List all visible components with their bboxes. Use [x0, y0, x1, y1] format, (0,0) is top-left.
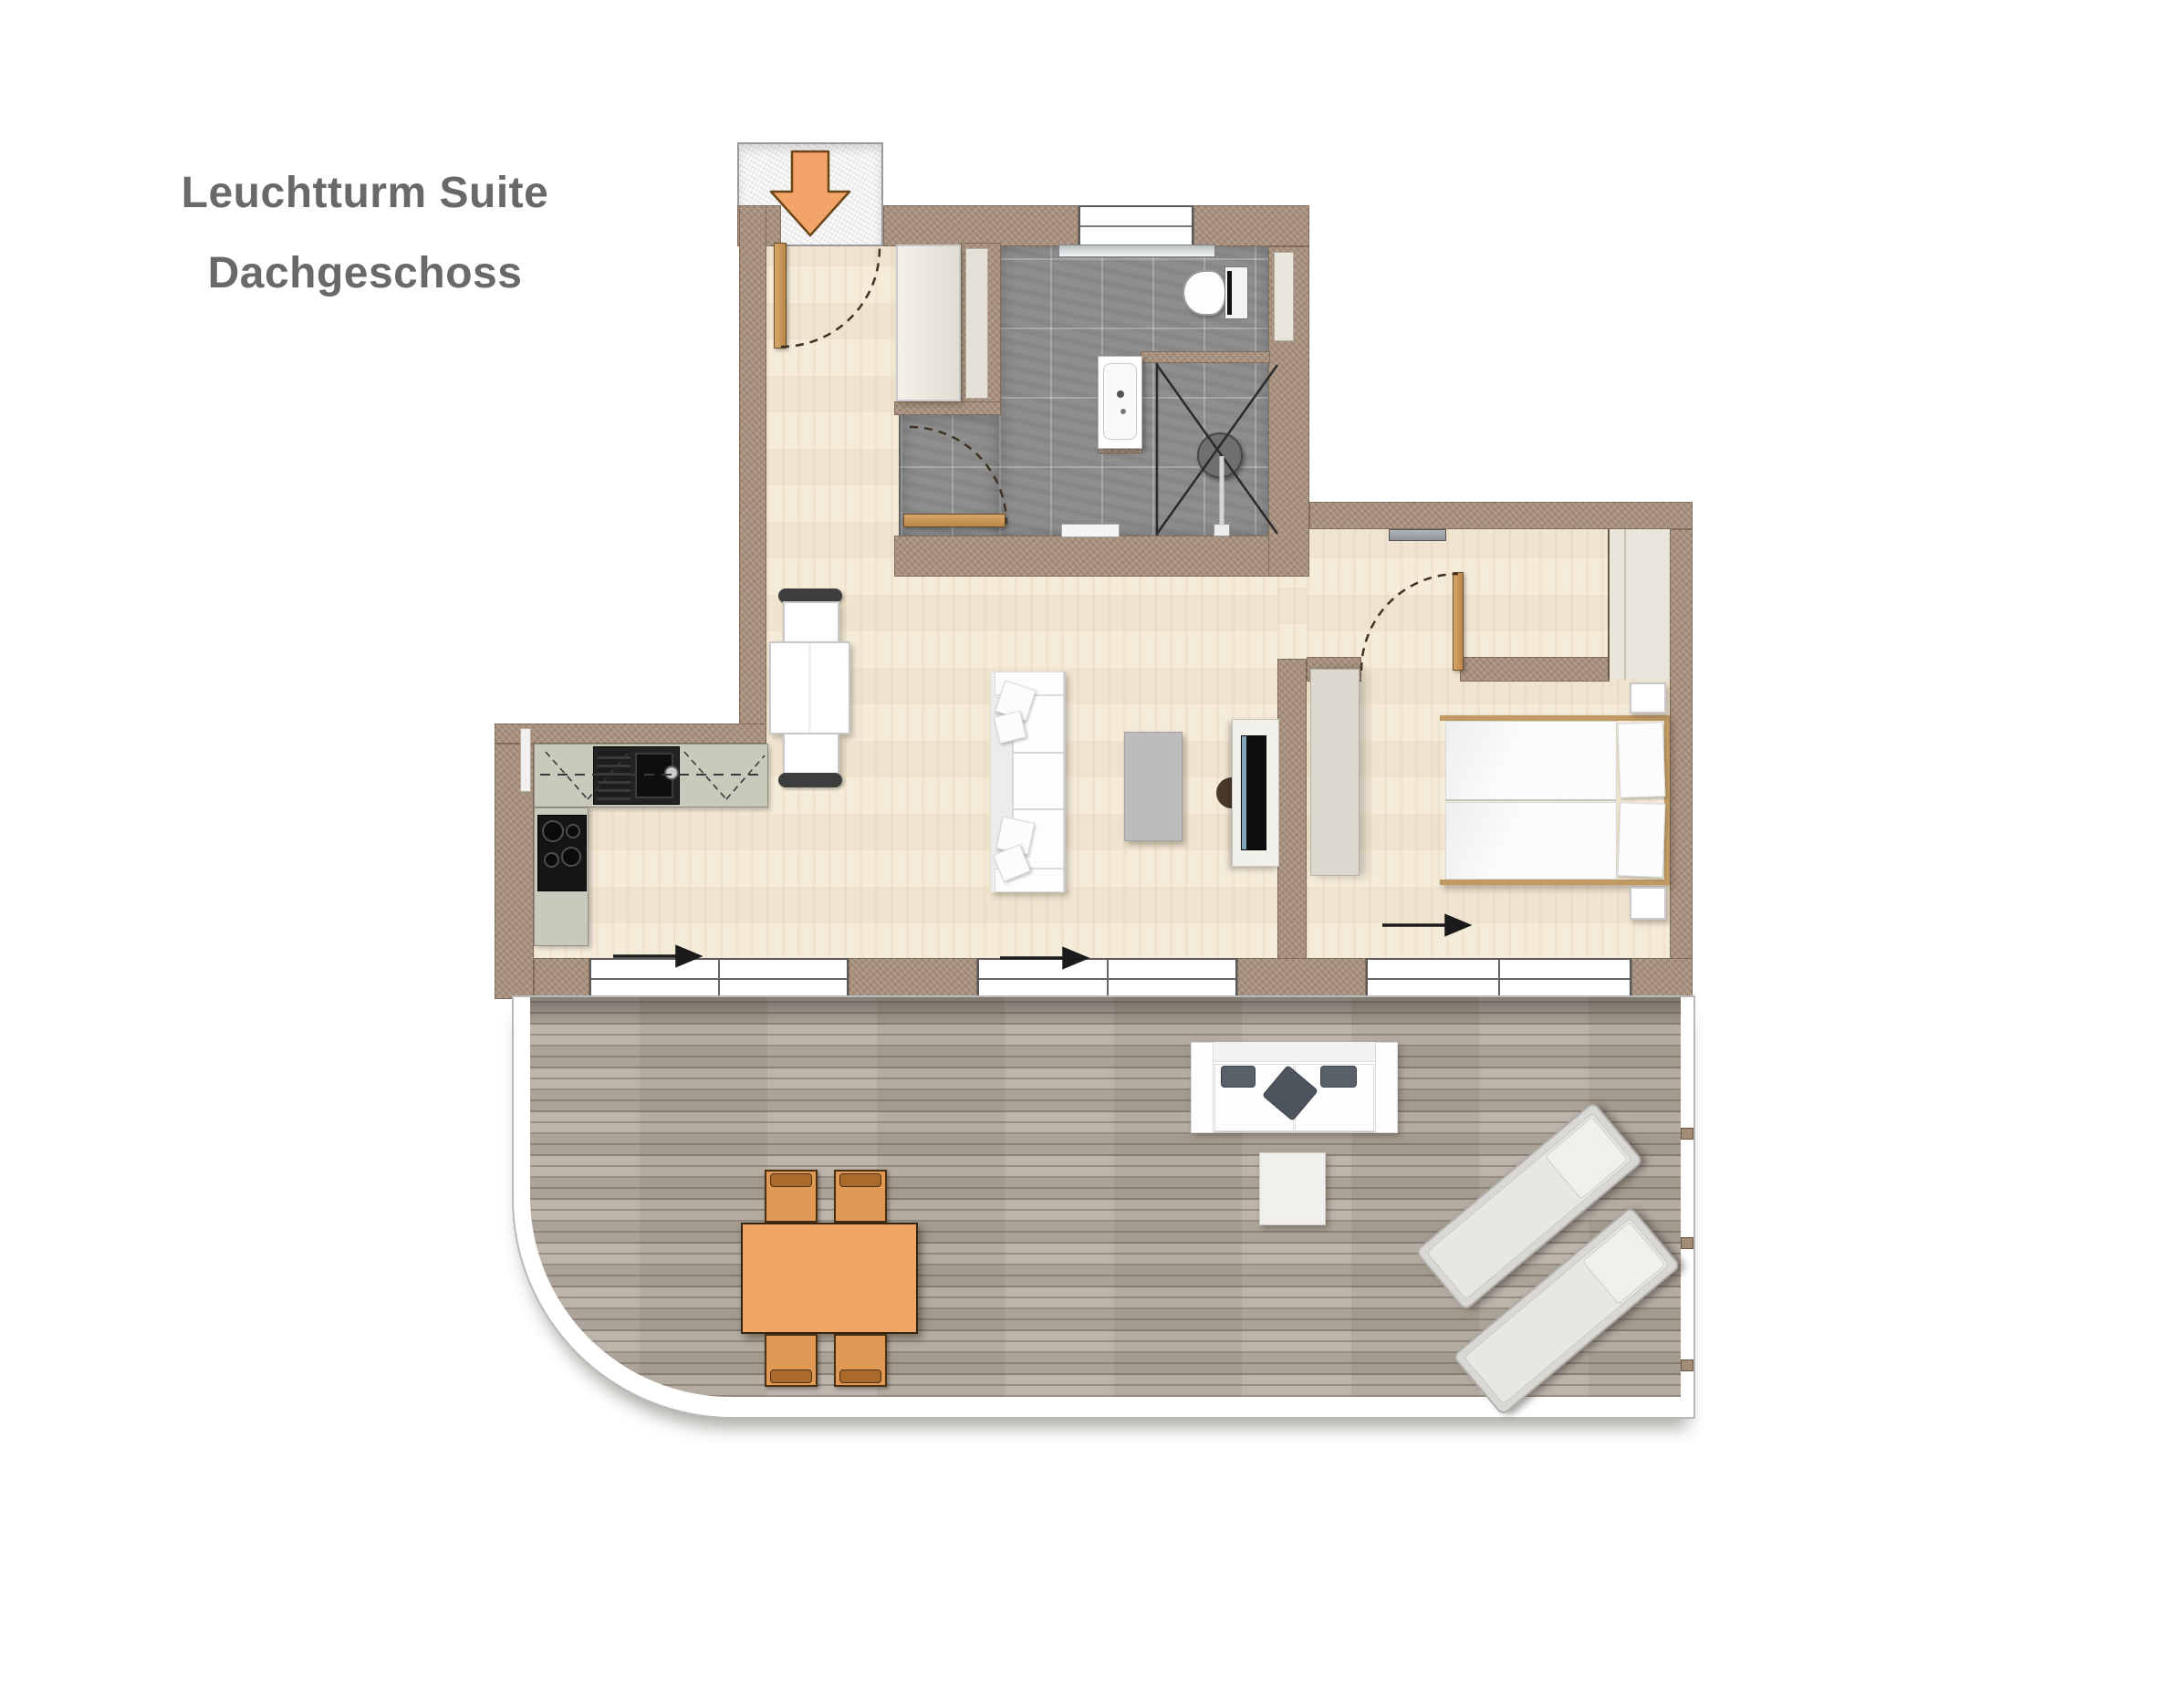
burner-1: [542, 820, 564, 842]
bathroom-door-leaf: [903, 514, 1006, 527]
bed-duvet-1: [1445, 721, 1617, 801]
wall-bedroom-door-right: [1460, 657, 1610, 682]
vanity-faucet: [1117, 391, 1124, 398]
bedroom-closet: [1608, 529, 1670, 680]
kitchen-wall-niche: [520, 728, 531, 792]
hall-wardrobe: [896, 245, 961, 401]
terrace-chair-2-back: [839, 1173, 881, 1187]
wall-top-right: [1193, 205, 1309, 246]
terrace-chair-1: [765, 1170, 818, 1223]
wall-pier-1: [534, 958, 589, 999]
wall-top-mid: [883, 205, 1078, 246]
floor-passage: [1277, 577, 1307, 661]
bedroom-door-leaf: [1453, 572, 1464, 671]
bathroom-wall-niche: [1274, 252, 1294, 341]
vanity-drain: [1120, 409, 1126, 414]
coffee-table: [1124, 732, 1183, 841]
terrace-chair-4: [834, 1334, 887, 1387]
outdoor-sofa-back: [1191, 1042, 1398, 1062]
wall-shower-divider: [1141, 351, 1270, 363]
bed-pillow-1: [1618, 722, 1666, 798]
floorplan-leuchtturm-suite: Leuchtturm Suite Dachgeschoss: [0, 0, 2157, 1708]
terrace-wall-shadow: [530, 997, 1681, 1025]
toilet-bowl: [1183, 270, 1226, 316]
bathroom-bench: [1061, 524, 1120, 537]
bathroom-mirror-shelf: [1058, 245, 1215, 257]
outdoor-side-table: [1259, 1152, 1326, 1225]
dining-chair-back-2: [778, 773, 842, 787]
bathroom-window: [1078, 205, 1193, 246]
bath-pocket-niche: [965, 248, 988, 399]
nightstand-1: [1630, 682, 1666, 713]
terrace-chair-1-back: [770, 1173, 812, 1187]
shower-control: [1214, 524, 1230, 536]
sink-faucet: [664, 765, 679, 780]
burner-4: [561, 847, 581, 867]
wall-kitchen-top: [495, 724, 766, 744]
terrace-chair-4-back: [839, 1370, 881, 1383]
terrace-chair-3-back: [770, 1370, 812, 1383]
wall-bath-stub: [894, 401, 1001, 415]
wall-hall-left: [739, 205, 766, 744]
wall-bedroom-top: [1309, 502, 1693, 529]
outdoor-pillow-3: [1320, 1066, 1357, 1088]
bedroom-window-sill: [1389, 529, 1446, 541]
shower-head: [1197, 432, 1243, 478]
dining-table: [769, 641, 850, 734]
railing-post-1: [1681, 1128, 1693, 1140]
dining-chair-1: [783, 601, 839, 643]
wall-bedroom-right: [1670, 529, 1693, 999]
dining-chair-2: [783, 733, 839, 775]
nightstand-2: [1630, 887, 1666, 920]
vanity-basin: [1103, 363, 1137, 440]
wall-pier-4: [1631, 958, 1693, 999]
terrace-door-1: [589, 958, 849, 999]
railing-post-2: [1681, 1237, 1693, 1249]
page-title-line1: Leuchtturm Suite: [109, 153, 620, 234]
tv: [1241, 735, 1266, 850]
terrace-table: [741, 1223, 918, 1334]
railing-post-3: [1681, 1359, 1693, 1371]
page-title-line2: Dachgeschoss: [109, 234, 620, 314]
burner-3: [544, 852, 559, 868]
terrace-door-3: [1366, 958, 1631, 999]
wall-partition-living-bedroom: [1277, 659, 1307, 999]
bed-duvet-2: [1445, 802, 1617, 880]
wall-pier-2: [849, 958, 977, 999]
outdoor-pillow-1: [1221, 1066, 1256, 1088]
terrace-chair-2: [834, 1170, 887, 1223]
terrace-door-2: [977, 958, 1237, 999]
toilet-flush-line: [1227, 271, 1232, 315]
outdoor-sofa-arm-left: [1191, 1042, 1214, 1133]
wall-bath-bottom: [894, 536, 1309, 577]
terrace-chair-3: [765, 1334, 818, 1387]
page-title: Leuchtturm Suite Dachgeschoss: [109, 153, 620, 336]
burner-2: [566, 824, 580, 838]
wall-pier-3: [1237, 958, 1366, 999]
bedroom-wardrobe: [1310, 669, 1360, 876]
outdoor-sofa-arm-right: [1375, 1042, 1398, 1133]
sink-drainboard: [598, 751, 630, 800]
entrance-door-leaf: [774, 243, 787, 349]
bed-pillow-2: [1618, 802, 1666, 878]
